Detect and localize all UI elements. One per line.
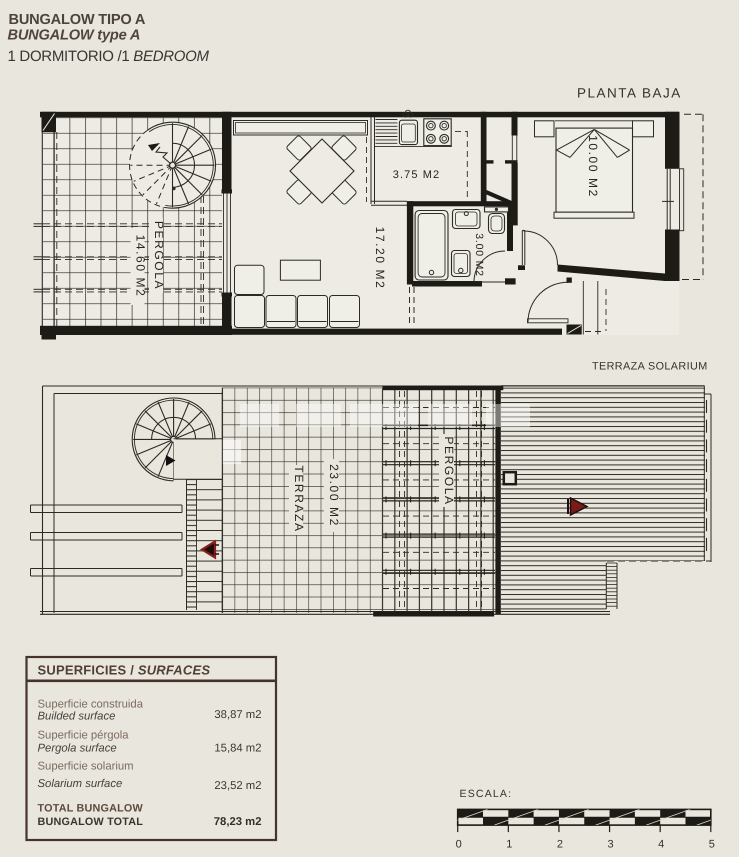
- svg-text:TERRAZA SOLARIUM: TERRAZA SOLARIUM: [592, 361, 708, 373]
- svg-text:4: 4: [658, 839, 664, 851]
- svg-text:Superficie pérgola: Superficie pérgola: [38, 730, 130, 742]
- svg-text:38,87 m2: 38,87 m2: [214, 709, 261, 721]
- svg-text:3: 3: [607, 839, 613, 851]
- svg-text:3.75 M2: 3.75 M2: [393, 169, 440, 181]
- svg-text:17.20 M2: 17.20 M2: [373, 227, 387, 290]
- svg-text:3.00 M2: 3.00 M2: [473, 233, 485, 277]
- svg-text:14.60 M2: 14.60 M2: [134, 235, 148, 298]
- svg-text:23.00 M2: 23.00 M2: [327, 464, 341, 527]
- svg-text:Solarium surface: Solarium surface: [38, 778, 123, 790]
- svg-text:TOTAL BUNGALOW: TOTAL BUNGALOW: [38, 802, 144, 814]
- svg-text:Builded surface: Builded surface: [38, 711, 116, 723]
- svg-text:0: 0: [456, 839, 462, 851]
- svg-text:1 DORMITORIO /1 BEDROOM: 1 DORMITORIO /1 BEDROOM: [8, 48, 210, 65]
- svg-text:5: 5: [709, 839, 715, 851]
- svg-text:BUNGALOW TIPO A: BUNGALOW TIPO A: [9, 12, 146, 28]
- svg-text:78,23 m2: 78,23 m2: [214, 816, 262, 828]
- svg-text:ESCALA:: ESCALA:: [460, 788, 513, 800]
- svg-text:PERGOLA: PERGOLA: [442, 436, 456, 505]
- svg-text:15,84 m2: 15,84 m2: [214, 742, 261, 754]
- svg-text:TERRAZA: TERRAZA: [292, 465, 306, 532]
- svg-text:2: 2: [557, 839, 563, 851]
- svg-text:Pergola surface: Pergola surface: [38, 742, 117, 754]
- svg-text:23,52 m2: 23,52 m2: [214, 780, 261, 792]
- svg-text:PLANTA BAJA: PLANTA BAJA: [577, 86, 682, 101]
- svg-text:BUNGALOW TOTAL: BUNGALOW TOTAL: [38, 816, 144, 828]
- svg-text:SUPERFICIES / SURFACES: SUPERFICIES / SURFACES: [38, 663, 211, 678]
- svg-text:1: 1: [506, 839, 512, 851]
- svg-text:Superficie construida: Superficie construida: [38, 699, 144, 711]
- svg-text:Superficie solarium: Superficie solarium: [38, 761, 134, 773]
- svg-text:PERGOLA: PERGOLA: [152, 221, 166, 290]
- svg-text:BUNGALOW type A: BUNGALOW type A: [8, 28, 141, 44]
- svg-text:10.00 M2: 10.00 M2: [586, 135, 600, 198]
